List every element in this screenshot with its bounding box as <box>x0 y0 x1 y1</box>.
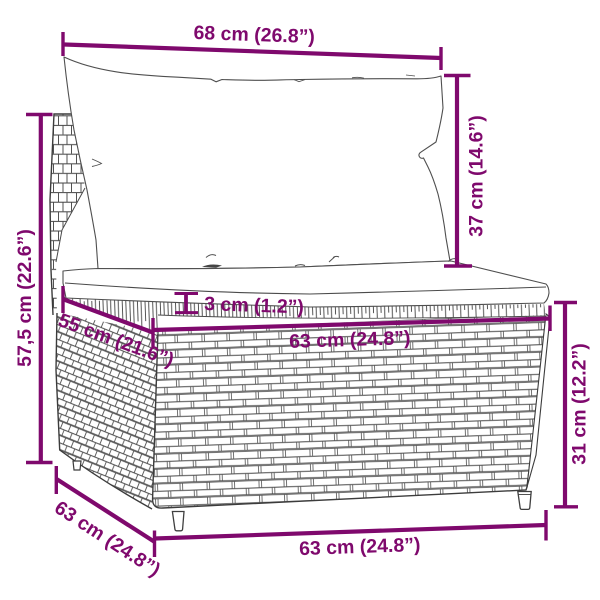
svg-text:68 cm (26.8”): 68 cm (26.8”) <box>193 22 315 48</box>
svg-text:63 cm (24.8”): 63 cm (24.8”) <box>299 534 421 560</box>
svg-text:63 cm (24.8”): 63 cm (24.8”) <box>289 327 411 353</box>
svg-text:57,5 cm (22.6”): 57,5 cm (22.6”) <box>14 229 36 367</box>
svg-text:31 cm (12.2”): 31 cm (12.2”) <box>569 343 591 464</box>
svg-text:3 cm (1.2”): 3 cm (1.2”) <box>204 293 304 318</box>
svg-text:37 cm (14.6”): 37 cm (14.6”) <box>466 115 488 236</box>
